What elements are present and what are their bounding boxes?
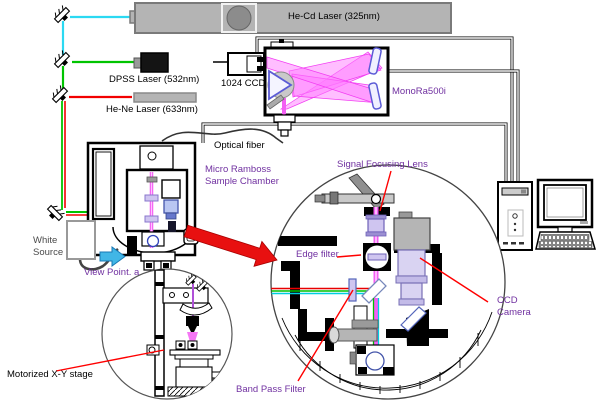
objective-lens (186, 316, 199, 326)
sample-chamber-label: Micro Ramboss Sample Chamber (205, 164, 279, 188)
pc-keyboard (536, 232, 595, 249)
he-cd-laser-label: He-Cd Laser (325nm) (288, 11, 380, 23)
diagram-canvas (0, 0, 600, 405)
ccd-1024-detector (213, 53, 264, 75)
pc-tower (498, 182, 532, 250)
objective-turret (350, 345, 394, 375)
stage-detail-inset (102, 269, 232, 399)
ccd-camera-label: CCD Camera (497, 295, 531, 319)
motorized-stage-label: Motorized X-Y stage (7, 369, 93, 381)
signal-focusing-lens-label: Signal Focusing Lens (337, 159, 428, 171)
steering-mirror-icon-1 (52, 5, 72, 25)
pc-monitor (538, 180, 592, 232)
he-ne-laser-label: He-Ne Laser (633nm) (106, 104, 198, 116)
signal-focusing-lens (366, 215, 386, 236)
dpss-laser-box (134, 53, 168, 72)
white-source-label: White Source (33, 235, 63, 259)
monora500i-spectrometer (265, 39, 388, 115)
band-pass-filter-label: Band Pass Filter (236, 384, 306, 396)
edge-filter (363, 243, 391, 271)
excitation-beam (271, 289, 373, 294)
steering-mirror-icon-2 (52, 50, 72, 70)
steering-mirror-icon-3 (50, 85, 70, 105)
view-point-label: View Point. a (84, 267, 139, 279)
laser-aperture-circle (227, 6, 251, 30)
monora500i-label: MonoRa500i (392, 86, 446, 98)
zoom-detail-arrow-icon (184, 225, 277, 266)
sample-chamber (88, 143, 198, 270)
optical-fiber-label: Optical fiber (214, 140, 265, 152)
edge-filter-label: Edge filter (296, 249, 339, 261)
optical-system-diagram: He-Cd Laser (325nm) DPSS Laser (532nm) H… (0, 0, 600, 405)
chamber-detail-inset (271, 165, 505, 399)
dpss-laser-label: DPSS Laser (532nm) (109, 74, 199, 86)
ccd-1024-label: 1024 CCD (221, 78, 265, 90)
he-ne-laser-box (134, 93, 196, 102)
chamber-view-camera (162, 180, 180, 198)
